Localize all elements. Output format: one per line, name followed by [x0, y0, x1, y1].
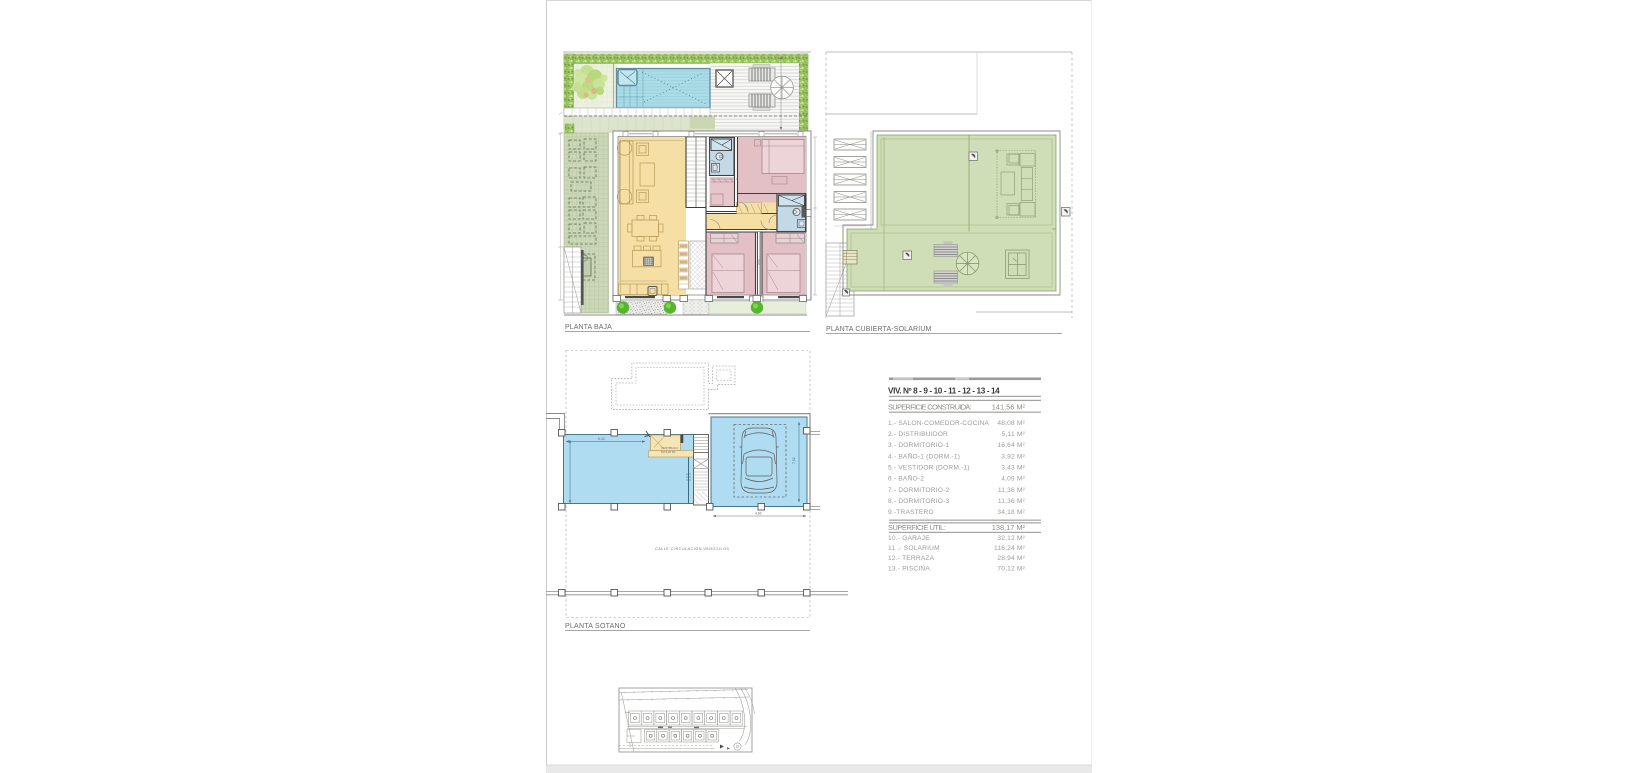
svg-text:6.- BAÑO-2: 6.- BAÑO-2: [888, 474, 924, 483]
svg-text:116,24 M²: 116,24 M²: [994, 545, 1026, 552]
svg-text:7.- DORMITORIO-2: 7.- DORMITORIO-2: [888, 487, 949, 494]
svg-text:11,36 M²: 11,36 M²: [998, 487, 1026, 494]
svg-text:28,94 M²: 28,94 M²: [997, 555, 1025, 562]
svg-text:PLANTA CUBIERTA-SOLARIUM: PLANTA CUBIERTA-SOLARIUM: [826, 326, 932, 333]
svg-text:3,92 M²: 3,92 M²: [1001, 453, 1025, 460]
svg-text:SUPERFICIE UTIL:: SUPERFICIE UTIL:: [888, 523, 946, 532]
svg-text:2.- DISTRIBUIDOR: 2.- DISTRIBUIDOR: [888, 431, 948, 438]
svg-text:CALLE CIRCULACIÓN VEHÍCULOS: CALLE CIRCULACIÓN VEHÍCULOS: [655, 546, 729, 551]
svg-text:5,11 M²: 5,11 M²: [1002, 431, 1026, 438]
svg-text:3.- DORMITORIO-1: 3.- DORMITORIO-1: [888, 442, 949, 449]
svg-text:138,17 M²: 138,17 M²: [992, 523, 1026, 532]
svg-text:13.- PISCINA: 13.- PISCINA: [888, 566, 930, 573]
svg-text:70,12 M²: 70,12 M²: [997, 566, 1025, 573]
svg-text:34,18 M²: 34,18 M²: [997, 509, 1025, 516]
svg-text:VIV. Nº 8 - 9 - 10 - 11 - 12: VIV. Nº 8 - 9 - 10 - 11 - 12 - 13 - 14: [888, 387, 1000, 396]
svg-text:7,62: 7,62: [792, 457, 796, 464]
svg-text:48,08 M²: 48,08 M²: [997, 420, 1025, 427]
svg-text:11,36 M²: 11,36 M²: [998, 498, 1026, 505]
svg-text:9.-TRASTERO: 9.-TRASTERO: [888, 509, 934, 516]
svg-text:1.- SALON-COMEDOR-COCINA: 1.- SALON-COMEDOR-COCINA: [888, 420, 990, 427]
svg-text:141,56 M²: 141,56 M²: [992, 403, 1026, 412]
svg-text:5.- VESTIDOR (DORM.-1): 5.- VESTIDOR (DORM.-1): [888, 465, 970, 472]
svg-text:12.- TERRAZA: 12.- TERRAZA: [888, 555, 935, 562]
svg-text:5,34: 5,34: [598, 437, 605, 441]
svg-text:4,09 M²: 4,09 M²: [1001, 476, 1025, 483]
svg-text:11 .- SOLARIUM: 11 .- SOLARIUM: [888, 545, 940, 552]
svg-text:32,12 M²: 32,12 M²: [997, 535, 1025, 542]
svg-text:PLANTA BAJA: PLANTA BAJA: [565, 324, 612, 331]
svg-text:8.- DORMITORIO-3: 8.- DORMITORIO-3: [888, 498, 949, 505]
svg-text:SUPERFICIE CONSTRUIDA:: SUPERFICIE CONSTRUIDA:: [888, 403, 972, 412]
svg-text:M=3,20 M²: M=3,20 M²: [661, 450, 675, 454]
svg-text:16,64 M²: 16,64 M²: [997, 442, 1025, 449]
svg-text:4.- BAÑO-1 (DORM.-1): 4.- BAÑO-1 (DORM.-1): [888, 451, 960, 460]
svg-text:4,60: 4,60: [755, 512, 762, 516]
svg-text:3,43 M²: 3,43 M²: [1001, 465, 1025, 472]
svg-text:10.- GARAJE: 10.- GARAJE: [888, 535, 930, 542]
svg-text:PLANTA SOTANO: PLANTA SOTANO: [565, 623, 626, 630]
